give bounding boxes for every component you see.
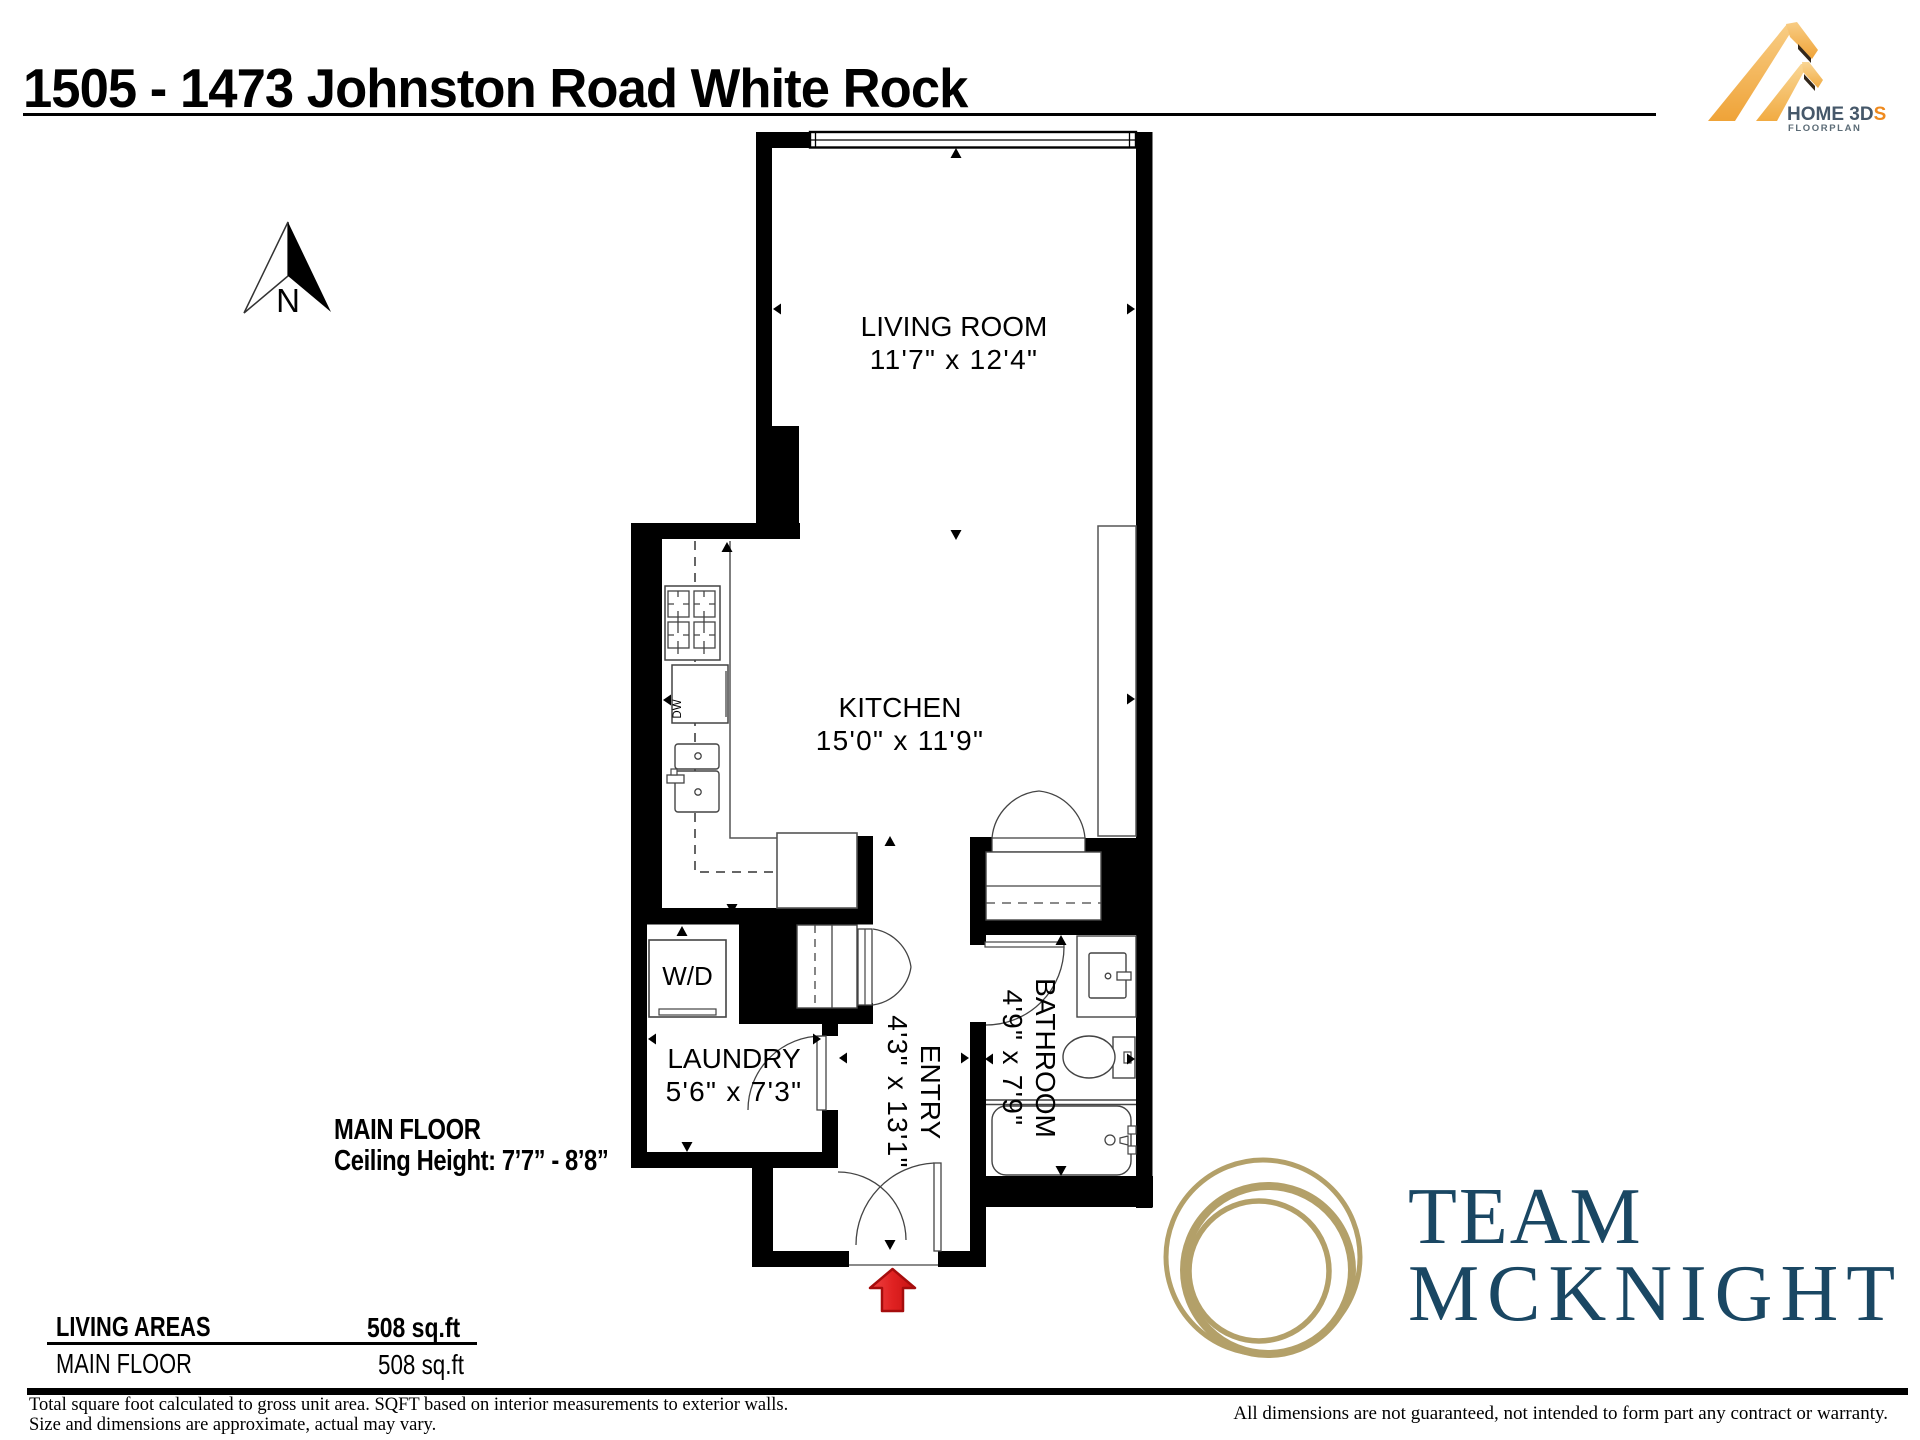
svg-text:DW: DW <box>672 699 684 718</box>
svg-text:N: N <box>276 282 300 319</box>
